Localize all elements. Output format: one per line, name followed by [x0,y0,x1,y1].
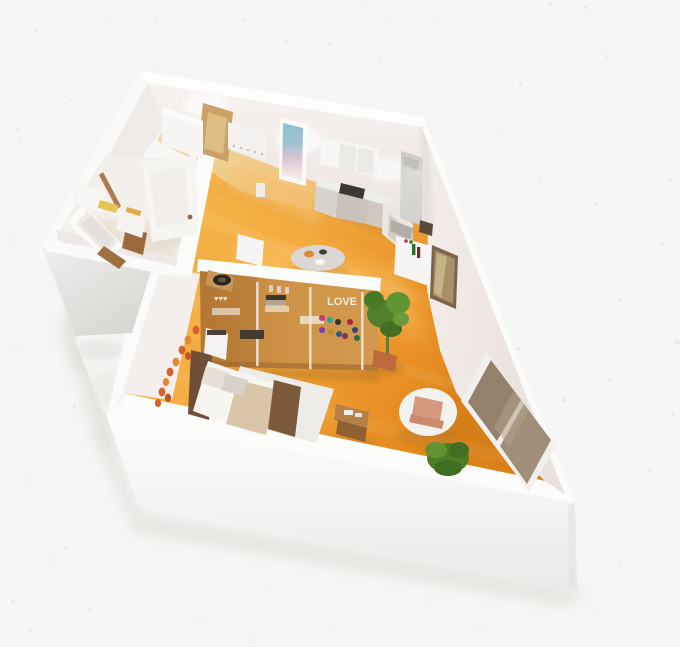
svg-text:♥♥♥: ♥♥♥ [214,294,228,303]
svg-text:LOVE: LOVE [327,296,357,308]
